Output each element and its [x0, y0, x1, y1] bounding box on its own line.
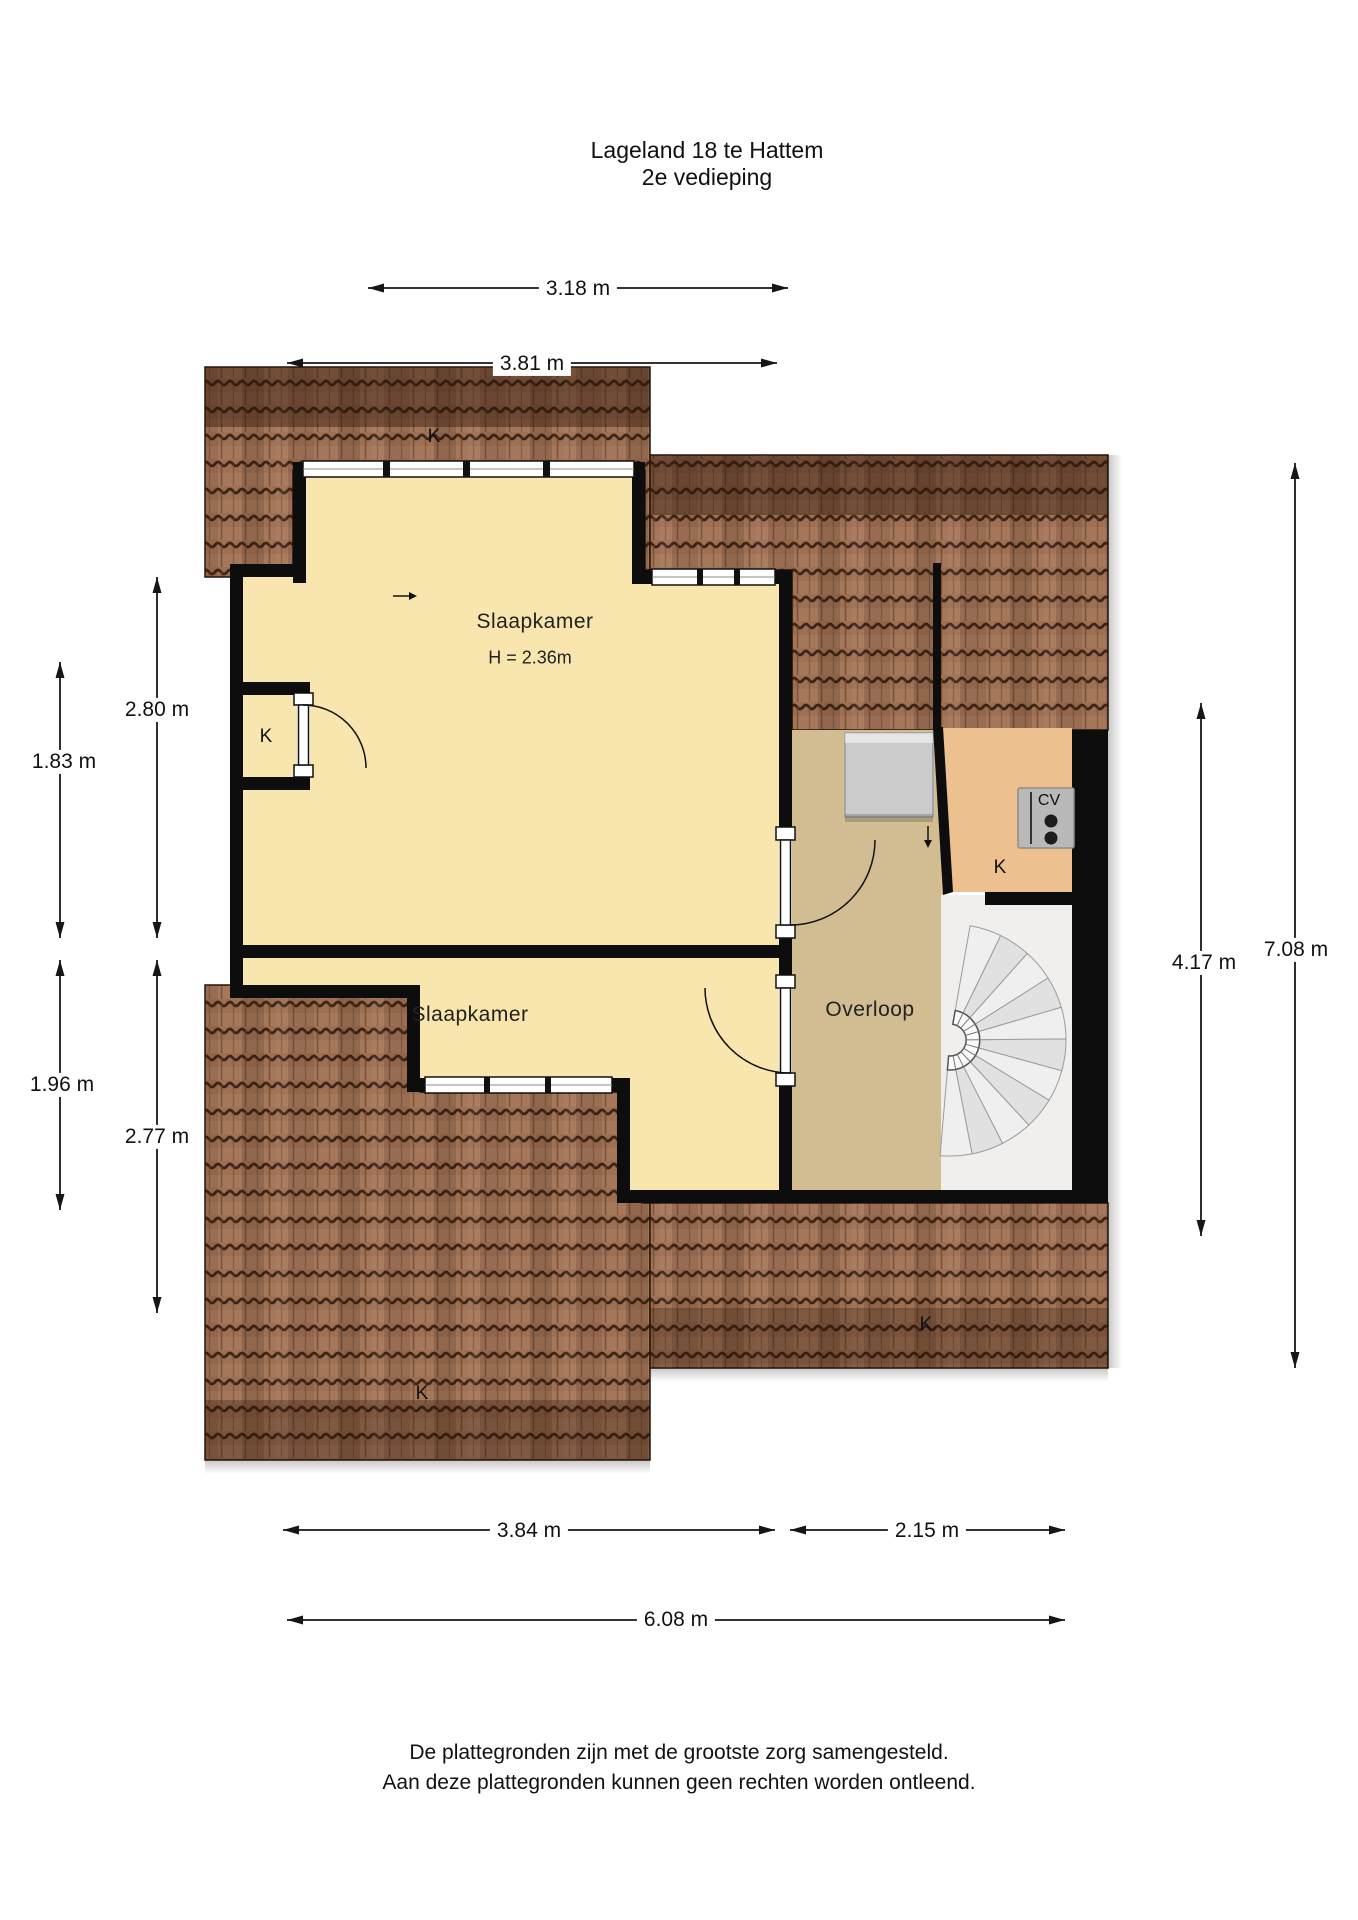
window-top-right — [652, 569, 775, 585]
room-label-landing: Overloop — [825, 998, 914, 1022]
room-label-ceiling-height: H = 2.36m — [488, 648, 572, 669]
page-subtitle: 2e vedieping — [642, 164, 772, 190]
dimension-right-outer: 7.08 m — [1257, 938, 1335, 962]
dimension-left-inner-upper: 1.83 m — [25, 750, 103, 774]
dimension-left-outer-upper: 2.80 m — [118, 698, 196, 722]
skylight — [845, 733, 933, 822]
dimension-top-inner: 3.18 m — [539, 277, 617, 301]
dimension-right-inner: 4.17 m — [1165, 951, 1243, 975]
disclaimer-line-1: De plattegronden zijn met de grootste zo… — [409, 1741, 948, 1765]
storage-label-roof-bottom-left: K — [416, 1383, 429, 1405]
room-label-bedroom-top: Slaapkamer — [476, 610, 593, 634]
window-top — [303, 461, 634, 477]
storage-label-right-room: K — [994, 857, 1007, 879]
dimension-left-outer-lower: 2.77 m — [118, 1125, 196, 1149]
page-title: Lageland 18 te Hattem — [591, 137, 824, 163]
floorplan-page: Lageland 18 te Hattem 2e vedieping 3.18 … — [0, 0, 1358, 1920]
dimension-top-outer: 3.81 m — [493, 352, 571, 376]
room-label-bedroom-bottom: Slaapkamer — [411, 1003, 528, 1027]
storage-label-roof-bottom-right: K — [920, 1314, 933, 1336]
cv-boiler-label: CV — [1038, 792, 1060, 810]
dimension-left-inner-lower: 1.96 m — [23, 1073, 101, 1097]
dimension-bottom-right: 2.15 m — [888, 1519, 966, 1543]
dimension-bottom-total: 6.08 m — [637, 1608, 715, 1632]
disclaimer-line-2: Aan deze plattegronden kunnen geen recht… — [382, 1771, 975, 1795]
dimension-bottom-left: 3.84 m — [490, 1519, 568, 1543]
storage-label-left-closet: K — [260, 726, 273, 748]
window-bottom — [425, 1077, 612, 1093]
storage-label-roof-top: K — [428, 426, 441, 448]
